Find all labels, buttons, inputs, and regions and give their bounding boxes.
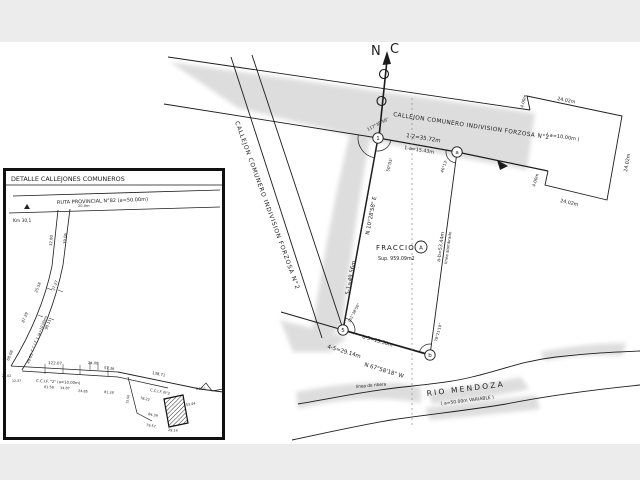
measure-label: 24.85 [78, 389, 88, 394]
vertex-a-label: a [455, 150, 458, 156]
measure-label: 24.00 [88, 361, 99, 366]
parcel-area-label: Sup. 959.09m2 [378, 256, 415, 262]
measure-label: 61.58 [44, 385, 54, 390]
measure-label: 81.28 [104, 390, 114, 395]
measure-label: 12.57 [12, 379, 21, 383]
scanned-survey-plan: N C CALLEJON COMUNERO INDIVISION FORZOSA… [0, 0, 640, 480]
inset-title: DETALLE CALLEJONES COMUNEROS [11, 175, 125, 183]
hatched-parcel [164, 395, 188, 427]
vertex-1-label: 1 [376, 136, 380, 142]
measure-label: 39.06 [62, 232, 68, 244]
measure-label: 34.87 [60, 386, 70, 391]
measure-label: 29.14 [168, 428, 178, 433]
vertex-b-label: b [428, 353, 432, 359]
measure-label: 24.02 [2, 374, 11, 378]
parcel-letter: A [419, 246, 423, 252]
measure-label: 122.07 [48, 360, 63, 366]
north-n-label: N [371, 44, 381, 59]
plan-canvas: N C CALLEJON COMUNERO INDIVISION FORZOSA… [0, 0, 640, 480]
measure-label: 32.80 [48, 234, 54, 246]
vertex-5-label: 5 [341, 328, 345, 334]
km-label: Km 30,1 [13, 218, 32, 224]
measure-label: 24.02 [196, 387, 206, 391]
inset-top-width: 20.0m [78, 204, 90, 208]
north-c-label: C [390, 42, 399, 57]
detail-inset: DETALLE CALLEJONES COMUNEROS RUTA PROVIN… [2, 170, 224, 439]
